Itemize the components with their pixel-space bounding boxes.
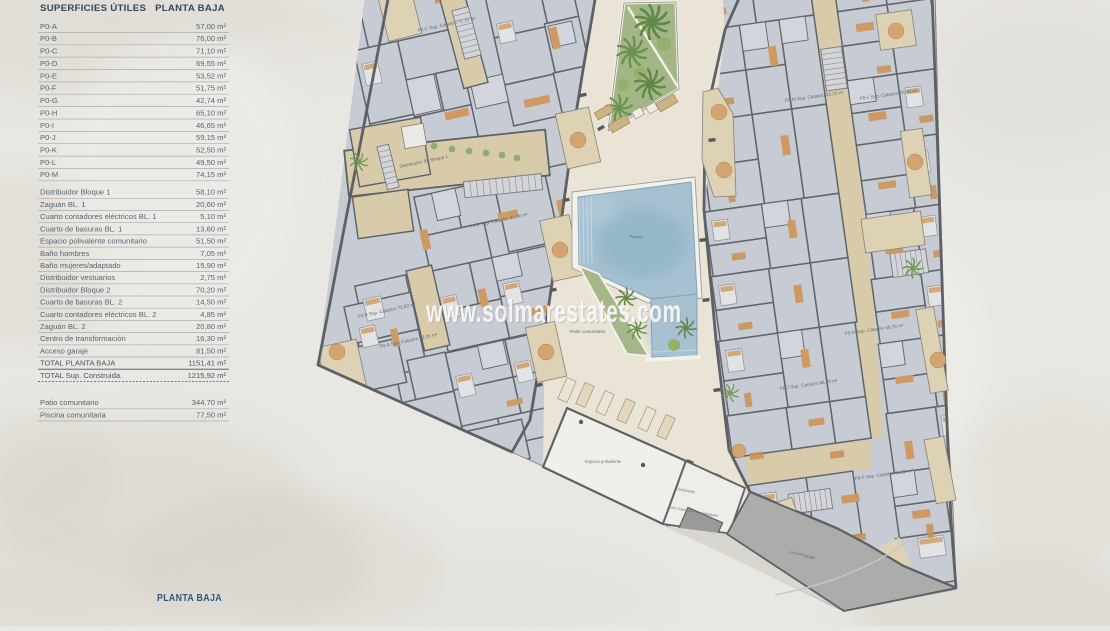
svg-text:42,74 m²: 42,74 m²: [196, 96, 226, 105]
svg-text:Patio comunitario: Patio comunitario: [40, 398, 99, 407]
svg-text:16,30 m²: 16,30 m²: [196, 334, 226, 343]
svg-text:P0-M: P0-M: [40, 170, 58, 179]
svg-text:53,52 m²: 53,52 m²: [196, 71, 226, 80]
svg-text:P0-G: P0-G: [40, 96, 58, 105]
svg-text:P0-D: P0-D: [40, 59, 58, 68]
svg-text:77,50 m²: 77,50 m²: [196, 410, 226, 419]
svg-text:70,20 m²: 70,20 m²: [196, 285, 226, 294]
svg-text:Espacio polivalente comunitari: Espacio polivalente comunitario: [40, 237, 147, 246]
svg-text:Piscina: Piscina: [630, 234, 644, 239]
svg-text:Acceso garaje: Acceso garaje: [40, 346, 88, 355]
svg-text:1151,41 m²: 1151,41 m²: [188, 359, 226, 368]
svg-text:20,80 m²: 20,80 m²: [196, 322, 226, 331]
svg-text:58,10 m²: 58,10 m²: [196, 188, 226, 197]
svg-text:65,10 m²: 65,10 m²: [196, 108, 226, 117]
svg-text:81,50 m²: 81,50 m²: [196, 346, 226, 355]
svg-text:69,55 m²: 69,55 m²: [196, 59, 226, 68]
svg-text:76,00 m²: 76,00 m²: [196, 34, 226, 43]
svg-text:1215,92 m²: 1215,92 m²: [188, 371, 227, 380]
svg-text:74,15 m²: 74,15 m²: [196, 170, 226, 179]
svg-text:Cuarto de basuras BL. 1: Cuarto de basuras BL. 1: [40, 224, 122, 233]
svg-text:Distribuidor vestuarios: Distribuidor vestuarios: [40, 273, 115, 282]
svg-text:SUPERFICIES ÚTILES: SUPERFICIES ÚTILES: [40, 2, 146, 14]
svg-text:71,10 m²: 71,10 m²: [196, 47, 226, 56]
svg-text:P0-L: P0-L: [40, 158, 56, 167]
svg-text:51,50 m²: 51,50 m²: [196, 237, 226, 246]
svg-text:Espacio polivalente: Espacio polivalente: [585, 459, 622, 464]
svg-text:5,10 m²: 5,10 m²: [200, 212, 226, 221]
svg-text:57,00 m²: 57,00 m²: [196, 22, 226, 31]
svg-text:15,90 m²: 15,90 m²: [196, 261, 226, 270]
svg-text:Zaguán BL. 2: Zaguán BL. 2: [40, 322, 86, 331]
svg-text:Centro de transformación: Centro de transformación: [40, 334, 126, 343]
svg-text:P0-E: P0-E: [40, 71, 57, 80]
svg-text:Piscina comunitaria: Piscina comunitaria: [40, 410, 107, 419]
svg-text:PLANTA BAJA: PLANTA BAJA: [157, 592, 222, 604]
svg-text:P0-K: P0-K: [40, 146, 57, 155]
svg-text:7,05 m²: 7,05 m²: [200, 249, 226, 258]
svg-text:Distribuidor Bloque 1: Distribuidor Bloque 1: [40, 188, 111, 197]
svg-text:www.solmarestates.com: www.solmarestates.com: [425, 294, 681, 329]
svg-text:2,75 m²: 2,75 m²: [200, 273, 226, 282]
svg-text:Cuarto de basuras BL. 2: Cuarto de basuras BL. 2: [40, 298, 122, 307]
svg-text:P0-J: P0-J: [40, 133, 56, 142]
svg-text:344,70 m²: 344,70 m²: [192, 398, 227, 407]
svg-text:Baño hombres: Baño hombres: [40, 249, 90, 258]
svg-text:Cuarto contadores eléctricos B: Cuarto contadores eléctricos BL. 2: [40, 310, 157, 319]
svg-text:P0-H: P0-H: [40, 108, 57, 117]
svg-text:14,50 m²: 14,50 m²: [196, 298, 226, 307]
svg-text:13,60 m²: 13,60 m²: [196, 224, 226, 233]
svg-text:P0-A: P0-A: [40, 22, 58, 31]
svg-text:PLANTA BAJA: PLANTA BAJA: [155, 3, 225, 14]
svg-text:TOTAL PLANTA BAJA: TOTAL PLANTA BAJA: [40, 359, 116, 368]
svg-text:TOTAL Sup. Construida.: TOTAL Sup. Construida.: [40, 371, 122, 380]
svg-text:52,50 m²: 52,50 m²: [196, 146, 226, 155]
svg-text:49,50 m²: 49,50 m²: [196, 158, 226, 167]
svg-text:P0-B: P0-B: [40, 34, 57, 43]
svg-text:P0-F: P0-F: [40, 84, 57, 93]
svg-text:Baño mujeres/adaptado: Baño mujeres/adaptado: [40, 261, 121, 270]
svg-text:46,65 m²: 46,65 m²: [196, 121, 226, 130]
svg-text:20,60 m²: 20,60 m²: [196, 200, 226, 209]
svg-text:P0-C: P0-C: [40, 47, 58, 56]
svg-text:4,85 m²: 4,85 m²: [200, 310, 226, 319]
svg-text:P0-I: P0-I: [40, 121, 54, 130]
svg-text:Distribuidor Bloque 2: Distribuidor Bloque 2: [40, 285, 111, 294]
svg-text:Cuarto contadores eléctricos B: Cuarto contadores eléctricos BL. 1: [40, 212, 157, 221]
svg-text:59,15 m²: 59,15 m²: [196, 133, 226, 142]
svg-text:Zaguán BL. 1: Zaguán BL. 1: [40, 200, 86, 209]
svg-text:51,75 m²: 51,75 m²: [196, 84, 226, 93]
